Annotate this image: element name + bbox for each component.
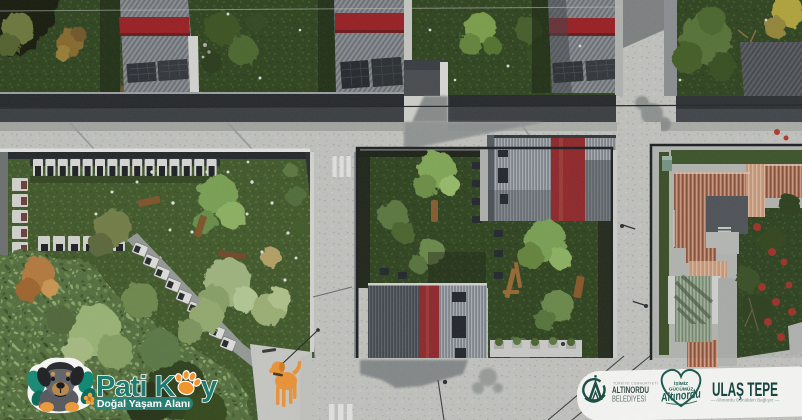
- svg-text:İŞİMİZ: İŞİMİZ: [674, 380, 688, 387]
- svg-text:y: y: [201, 371, 217, 403]
- svg-text:ALTINORDU: ALTINORDU: [612, 385, 649, 395]
- svg-text:BELEDİYESİ: BELEDİYESİ: [612, 395, 646, 404]
- svg-text:— Altınordu Gönülden Bağlıyız: — Altınordu Gönülden Bağlıyız —: [711, 398, 780, 403]
- svg-text:Doğal Yaşam Alanı: Doğal Yaşam Alanı: [97, 398, 190, 410]
